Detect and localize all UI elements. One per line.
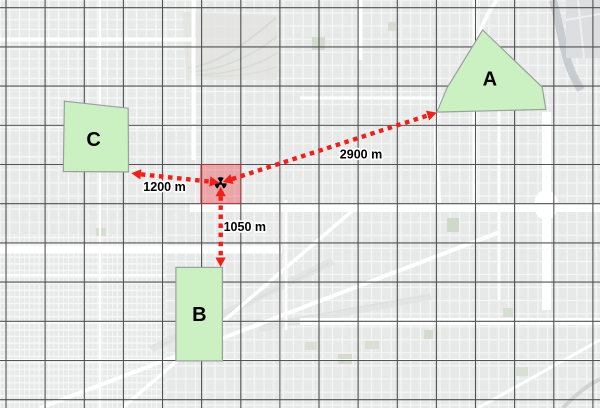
svg-text:1200 m: 1200 m [143,180,185,194]
svg-text:A: A [483,69,497,91]
svg-text:1050 m: 1050 m [224,220,266,234]
svg-text:B: B [192,304,206,326]
svg-text:2900 m: 2900 m [340,148,382,162]
svg-text:C: C [86,129,100,151]
